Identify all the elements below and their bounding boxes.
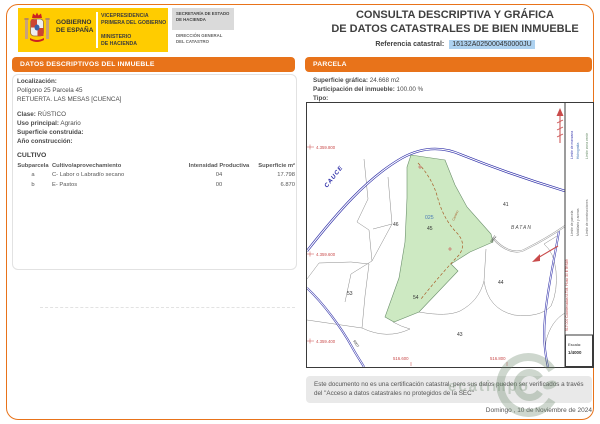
secretaria-estado-label: SECRETARÍA DE ESTADO DE HACIENDA	[172, 8, 234, 30]
participacion-label: Participación del inmueble:	[313, 86, 395, 93]
uso-principal-label: Uso principal:	[17, 120, 59, 127]
coord-label: 4.359.600	[316, 252, 336, 257]
parcel-label: 54	[413, 295, 419, 301]
parcel-label: 46	[393, 222, 399, 228]
coord-label: 516.600	[393, 356, 409, 361]
uso-principal-value: Agrario	[60, 120, 80, 127]
cultivo-table-header-row: Subparcela Cultivo/aprovechamiento Inten…	[14, 162, 295, 171]
tipo-label: Tipo:	[313, 95, 328, 102]
cell-cultivo: C- Labor o Labradío secano	[52, 171, 185, 180]
superficie-grafica-label: Superficie gráfica:	[313, 77, 368, 84]
map-legend: Límite de manzana Hidrografía Límite zon…	[565, 131, 589, 331]
cell-subparcela: a	[14, 171, 52, 180]
coord-label: 4.359.400	[316, 339, 336, 344]
localizacion-line1: Polígono 25 Parcela 45	[17, 87, 82, 94]
north-arrow-icon	[557, 108, 564, 143]
parcel-label: 53	[347, 291, 353, 297]
subject-parcela-label: 45	[427, 226, 433, 232]
document-title-line1: CONSULTA DESCRIPTIVA Y GRÁFICA	[318, 8, 592, 22]
right-panel-header: PARCELA	[305, 57, 592, 72]
superficie-construida-label: Superficie construida:	[17, 129, 83, 136]
legend-item: Límite zona verde	[585, 133, 589, 159]
header-separator	[96, 12, 98, 48]
watermark-text: ecatimpo	[448, 378, 530, 395]
legend-item: Límite de manzana	[570, 131, 574, 159]
cadastral-map: Camino 46 41 53 54 43 44 025 45 BATAN	[306, 102, 594, 368]
legend-item: Límite de parcela	[570, 211, 574, 236]
superficie-grafica-value: 24.668 m2	[370, 77, 400, 84]
localizacion-block: Localización: Polígono 25 Parcela 45 RET…	[17, 77, 121, 104]
cultivo-section-title: CULTIVO	[17, 152, 46, 159]
ministerio-label: MINISTERIO DE HACIENDA	[101, 34, 137, 48]
scale-box: Escala: 1/4000	[566, 335, 593, 367]
property-attributes-block: Clase: RÚSTICO Uso principal: Agrario Su…	[17, 110, 83, 147]
map-canvas: Camino 46 41 53 54 43 44 025 45 BATAN	[307, 103, 593, 367]
clase-value: RÚSTICO	[38, 111, 66, 118]
direccion-general-catastro-label: DIRECCIÓN GENERAL DEL CATASTRO	[172, 33, 234, 45]
left-panel-dashed-divider	[40, 307, 295, 308]
vicepresidencia-label: VICEPRESIDENCIA PRIMERA DEL GOBIERNO	[101, 13, 166, 27]
cell-intensidad: 00	[185, 181, 253, 190]
coord-label: 4.359.800	[316, 145, 336, 150]
table-row: a C- Labor o Labradío secano 04 17.798	[14, 171, 295, 180]
gobierno-de-espana-label: GOBIERNO DE ESPAÑA	[56, 19, 93, 35]
subject-poligono-label: 025	[425, 215, 434, 221]
localizacion-label: Localización:	[17, 78, 57, 85]
parcel-label: 43	[457, 332, 463, 338]
river-label: CAUCE	[324, 165, 345, 189]
col-cultivo: Cultivo/aprovechamiento	[52, 162, 185, 171]
cadastral-reference-label: Referencia catastral:	[375, 41, 444, 48]
cadastral-reference-value: 16132A025000450000JU	[449, 40, 534, 49]
table-row: b E- Pastos 00 6.870	[14, 181, 295, 190]
cell-superficie: 6.870	[253, 181, 295, 190]
clase-label: Clase:	[17, 111, 36, 118]
legend-item: Hidrografía	[576, 143, 580, 159]
document-title-line2: DE DATOS CATASTRALES DE BIEN INMUEBLE	[318, 22, 592, 36]
col-superficie: Superficie m²	[253, 162, 295, 171]
anio-construccion-label: Año construcción:	[17, 138, 73, 145]
cultivo-table: Subparcela Cultivo/aprovechamiento Inten…	[14, 162, 295, 190]
col-intensidad: Intensidad Productiva	[185, 162, 253, 171]
legend-item: Mobiliario y aceras	[576, 208, 580, 236]
localizacion-line2: RETUERTA. LAS MESAS [CUENCA]	[17, 96, 121, 103]
place-name-label: BATAN	[511, 225, 532, 231]
left-panel-header: DATOS DESCRIPTIVOS DEL INMUEBLE	[12, 57, 295, 72]
cell-subparcela: b	[14, 181, 52, 190]
cell-intensidad: 04	[185, 171, 253, 180]
cell-superficie: 17.798	[253, 171, 295, 180]
cadastral-reference-row: Referencia catastral: 16132A025000450000…	[318, 40, 592, 49]
participacion-row: Participación del inmueble: 100.00 %	[313, 85, 423, 94]
col-subparcela: Subparcela	[14, 162, 52, 171]
participacion-value: 100.00 %	[397, 86, 424, 93]
parcel-label: 41	[503, 202, 509, 208]
parcel-label: 44	[498, 280, 504, 286]
utm-note-label: 517.000 Coordenadas U.T.M. Huso 30 ETRS8…	[565, 259, 569, 331]
spain-coat-of-arms-icon	[22, 11, 52, 49]
scale-value: 1/4000	[568, 350, 582, 355]
legend-item: Límite de construcciones	[585, 199, 589, 236]
superficie-grafica-row: Superficie gráfica: 24.668 m2	[313, 76, 399, 85]
cell-cultivo: E- Pastos	[52, 181, 185, 190]
scale-label: Escala:	[568, 342, 581, 347]
road-number-label: 9007	[352, 339, 360, 348]
